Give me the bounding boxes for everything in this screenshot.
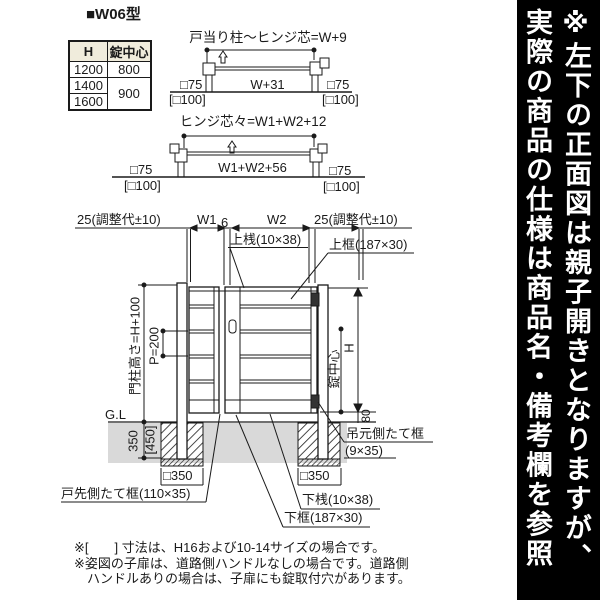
hinge-icon [311,293,319,306]
footing-size-label: □350 [163,469,193,483]
up-arrow-icon [228,141,236,153]
adjust-left-label: 25(調整代±10) [77,213,161,227]
bottom-rail-label: 下桟(10×38) [302,493,373,507]
embed-depth-alt-label: [450] [143,426,158,455]
width-dim-label: W+31 [240,78,295,92]
post-size-label: □75 [327,78,349,92]
footnote-line: ※姿図の子扉は、道路側ハンドルなしの場合です。道路側 [74,556,411,572]
size-spec-table: H 錠中心 1200 800 1400 900 1600 [68,40,152,111]
banner-vertical-text: ※左下の正面図は親子開きとなりますが、 実際の商品の仕様は商品名・備考欄を参照 [517,0,598,600]
latch-stile-label: 戸先側たて框(110×35) [61,487,190,501]
table-cell: 1400 [69,78,108,94]
table-cell: 1600 [69,94,108,111]
handle-icon [229,320,236,333]
table-cell: 800 [108,62,152,78]
side-notice-banner: ※左下の正面図は親子開きとなりますが、 実際の商品の仕様は商品名・備考欄を参照 [517,0,600,600]
diagram1-title: 戸当り柱〜ヒンジ芯=W+9 [186,31,350,45]
post-size-alt-label: [□100] [322,93,359,107]
banner-line-1: ※左下の正面図は親子開きとなりますが、 [556,8,595,600]
embed-depth-label: 350 [126,430,141,452]
table-cell: 1200 [69,62,108,78]
up-arrow-icon [219,51,227,63]
banner-line-2: 実際の商品の仕様は商品名・備考欄を参照 [517,8,556,600]
hinge-icon [170,144,179,153]
table-cell-merged: 900 [108,78,152,111]
ground-level-label: G.L [105,408,126,422]
pitch-label: P=200 [147,327,162,365]
post-size-label: □75 [329,164,351,178]
post-size-alt-label: [□100] [169,93,206,107]
height-label: H [342,343,357,352]
bottom-frame-label: 下框(187×30) [284,511,362,525]
w1-label: W1 [197,213,217,227]
gap-label: 6 [221,216,228,230]
main-door [225,287,317,413]
footing-size-label: □350 [300,469,330,483]
diagram2-title: ヒンジ芯々=W1+W2+12 [172,115,334,129]
hinge-icon [318,144,327,153]
hinge-stile-label: 吊元側たて框 [346,427,424,441]
top-frame-label: 上框(187×30) [329,238,407,252]
width-dim-label: W1+W2+56 [210,161,295,175]
left-post [177,283,187,459]
hinge-stile-size-label: (9×35) [345,444,383,458]
col-header-lock-center: 錠中心 [108,41,152,62]
footnote-line: ※[ ] 寸法は、H16および10-14サイズの場合です。 [74,540,411,556]
top-rail-label: 上桟(10×38) [230,233,301,247]
hinge-icon [320,58,329,68]
post-size-label: □75 [180,78,202,92]
page-title: ■W06型 [86,7,141,23]
hinge-icon [311,395,319,408]
post-size-label: □75 [130,163,152,177]
pillar-height-label: 門柱高さ=H+100 [125,297,144,395]
w2-label: W2 [267,213,287,227]
post-size-alt-label: [□100] [124,179,161,193]
bottom-clearance-label: 80 [359,409,373,422]
adjust-right-label: 25(調整代±10) [314,213,398,227]
col-header-h: H [69,41,108,62]
footnote-line: ハンドルありの場合は、子扉にも錠取付穴があります。 [74,571,411,587]
footnotes: ※[ ] 寸法は、H16および10-14サイズの場合です。 ※姿図の子扉は、道路… [74,540,411,587]
lock-center-label: 錠中心 [324,349,343,388]
product-spec-diagram: ■W06型 H 錠中心 1200 800 1400 900 1600 戸当り柱〜… [0,0,600,600]
post-size-alt-label: [□100] [323,180,360,194]
